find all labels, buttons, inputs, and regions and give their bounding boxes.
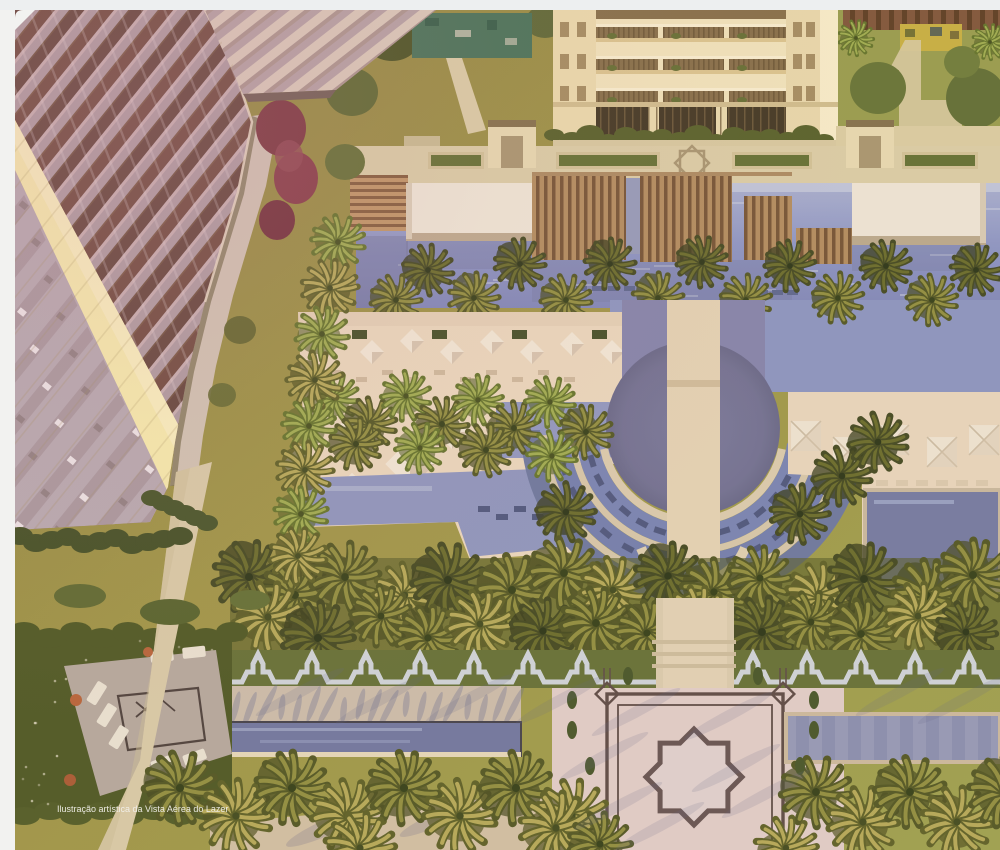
svg-text:Ilustração artística da Vista: Ilustração artística da Vista Aérea do L…: [57, 804, 228, 814]
